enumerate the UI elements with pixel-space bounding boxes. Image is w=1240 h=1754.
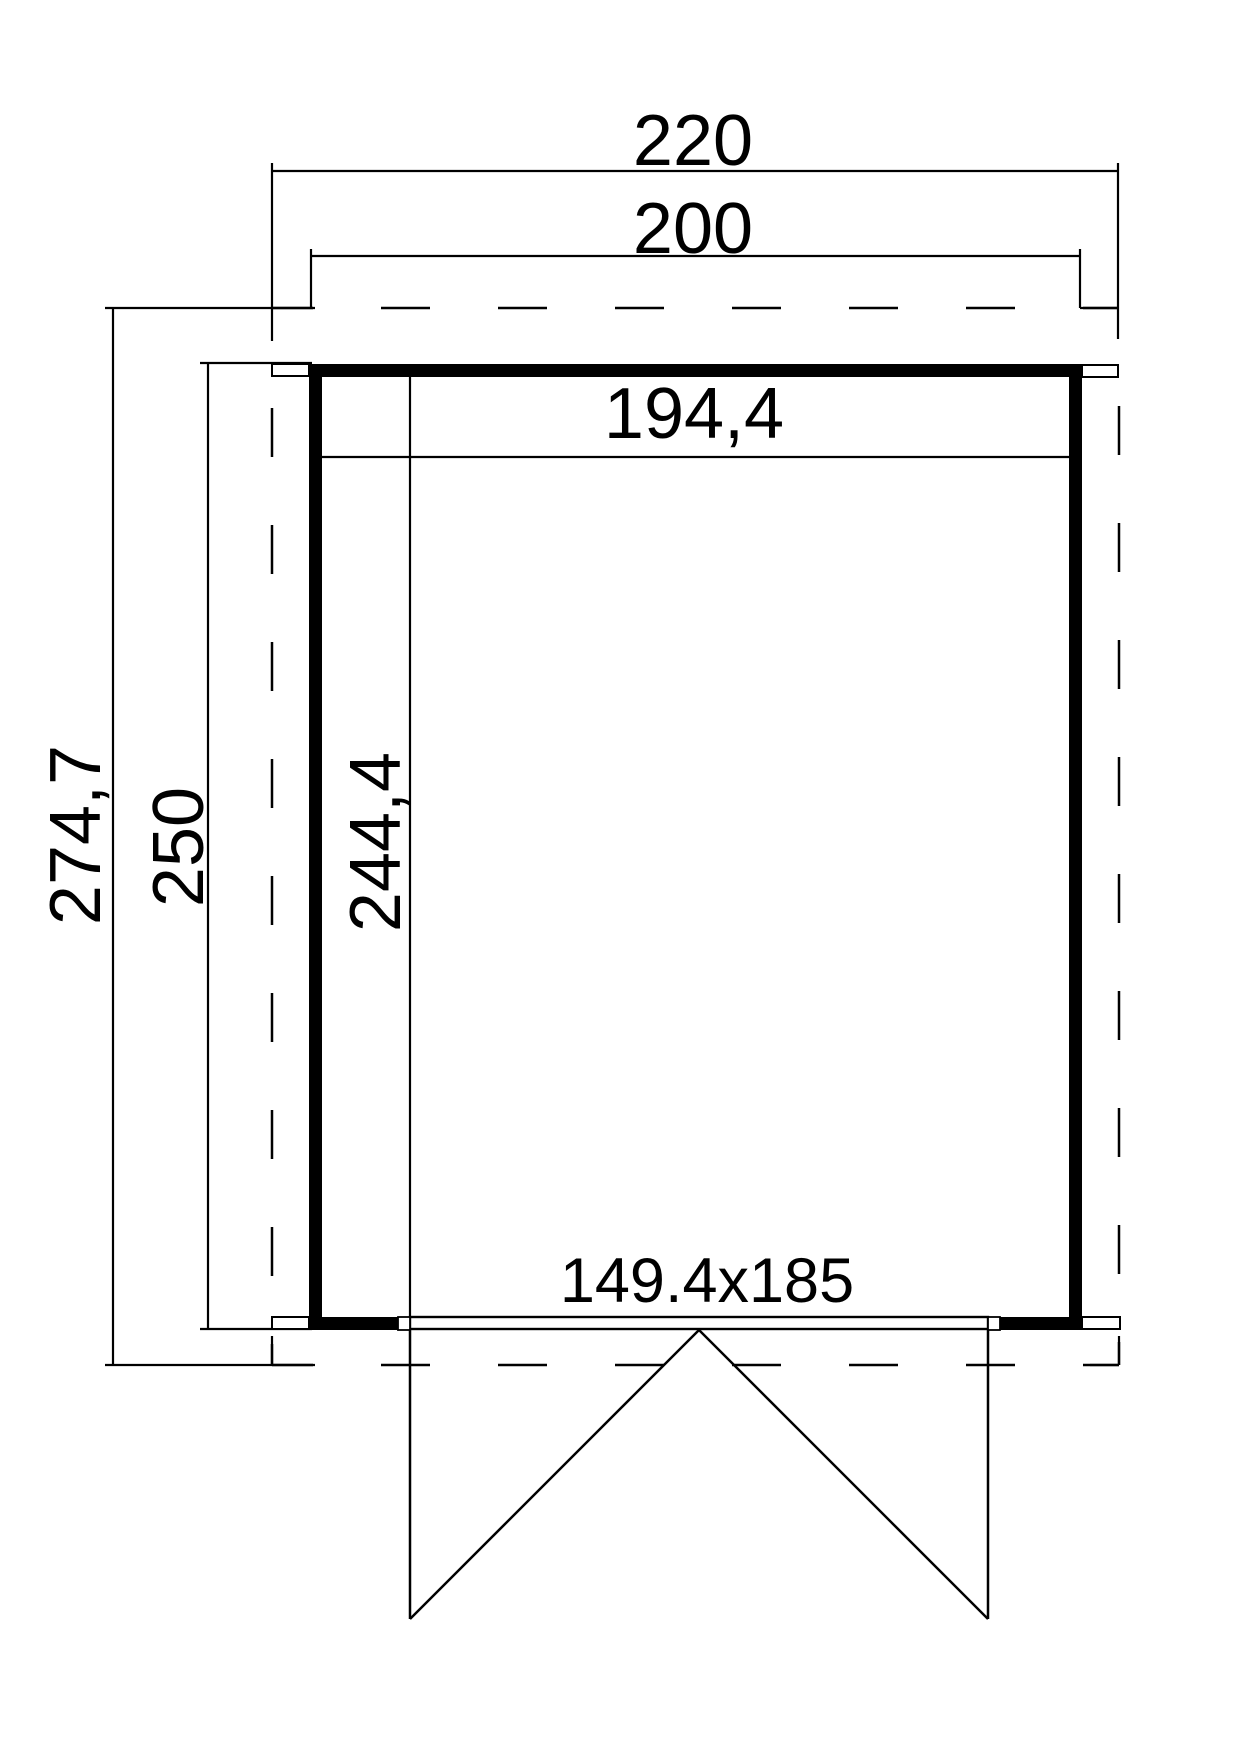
door-swing-left [410, 1330, 699, 1619]
wall-right [1069, 364, 1082, 1330]
wall-left [309, 364, 322, 1330]
eave-top-left [272, 364, 309, 376]
door-jamb-right [988, 1317, 1000, 1330]
eave-bottom-right [1082, 1317, 1120, 1329]
eave-bottom-left [272, 1317, 309, 1329]
wall-bottom-left-segment [309, 1317, 398, 1330]
floor-plan-page: 220 200 194,4 274,7 250 244,4 149.4x185 [0, 0, 1240, 1754]
eave-top-right [1082, 365, 1118, 377]
door-swing-right [699, 1330, 988, 1619]
door-threshold [410, 1317, 988, 1329]
label-roof-depth: 274,7 [36, 745, 116, 925]
label-wall-width: 200 [633, 189, 753, 269]
label-inner-width: 194,4 [604, 374, 784, 454]
label-wall-depth: 250 [139, 787, 219, 907]
walls [309, 364, 1082, 1330]
dimension-labels: 220 200 194,4 274,7 250 244,4 149.4x185 [36, 101, 854, 1316]
label-inner-depth: 244,4 [336, 752, 416, 932]
wall-bottom-right-segment [998, 1317, 1082, 1330]
shed-floor-plan: 220 200 194,4 274,7 250 244,4 149.4x185 [0, 0, 1240, 1754]
label-roof-width: 220 [633, 101, 753, 181]
dimension-lines [105, 163, 1118, 1365]
door-jamb-left [398, 1317, 410, 1330]
label-door-size: 149.4x185 [560, 1246, 854, 1316]
door [398, 1317, 1000, 1619]
